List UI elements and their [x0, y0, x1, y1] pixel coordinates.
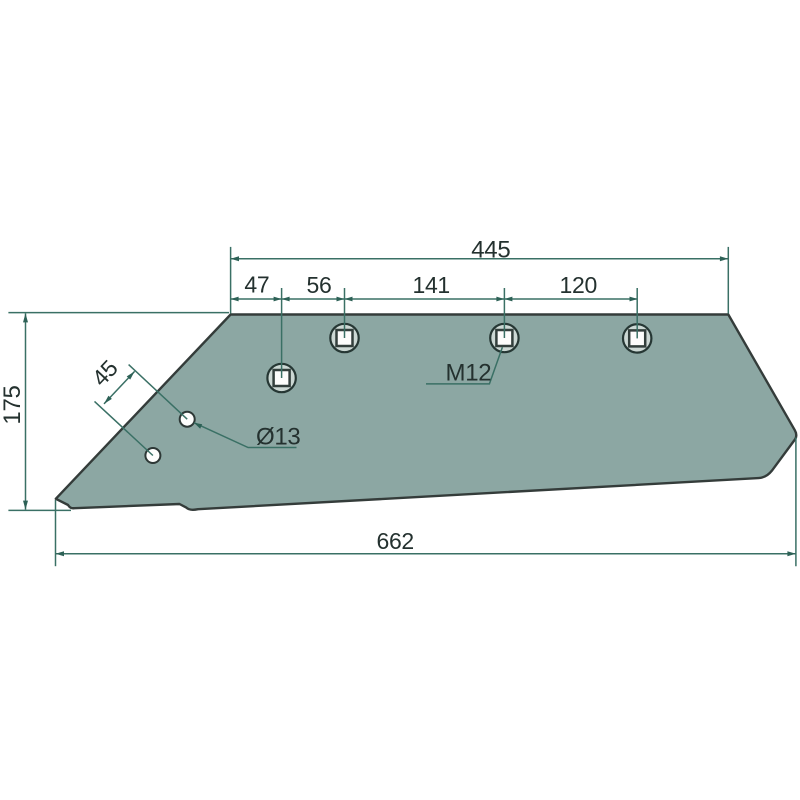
svg-text:M12: M12: [446, 360, 492, 387]
svg-text:47: 47: [244, 272, 269, 298]
svg-text:56: 56: [307, 272, 332, 298]
svg-text:120: 120: [560, 272, 597, 298]
svg-text:445: 445: [471, 236, 510, 263]
svg-text:141: 141: [412, 272, 449, 298]
svg-text:Ø13: Ø13: [256, 423, 300, 450]
svg-text:175: 175: [0, 385, 26, 424]
svg-text:45: 45: [87, 355, 123, 391]
svg-text:662: 662: [376, 528, 413, 554]
